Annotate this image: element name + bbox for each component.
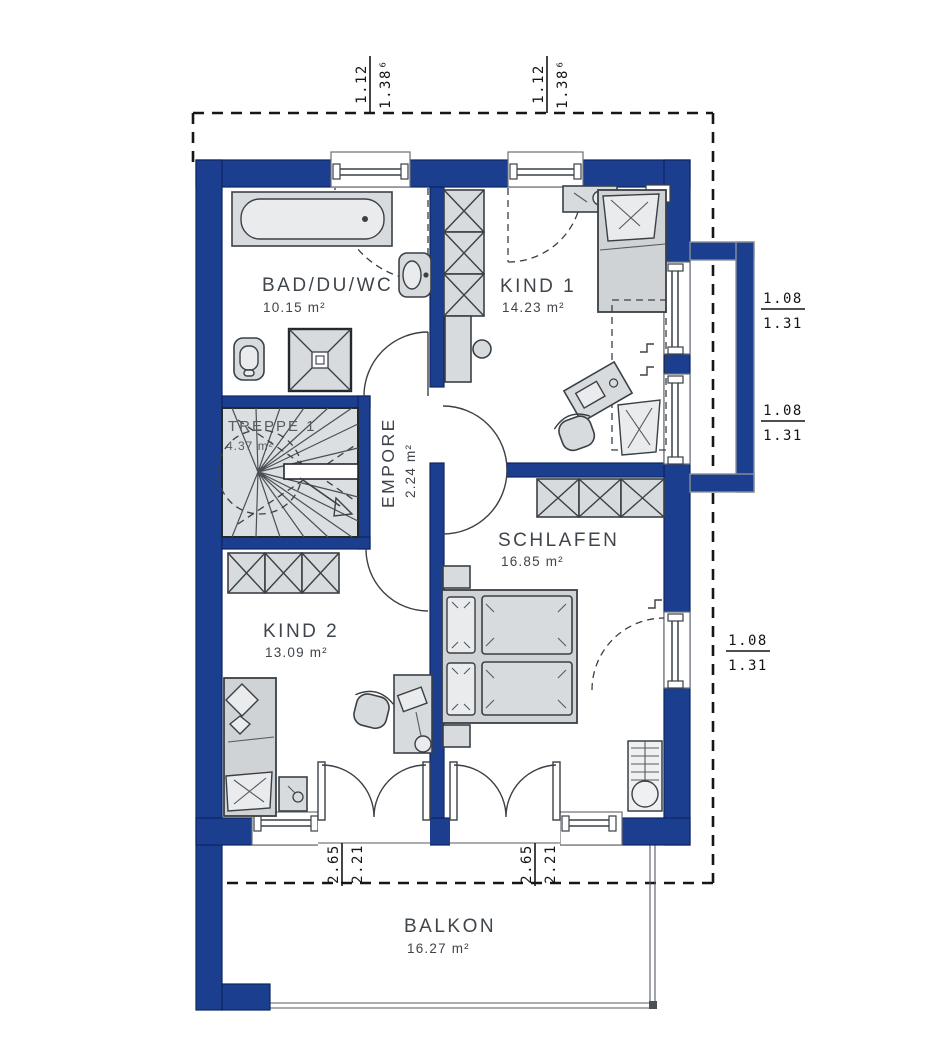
dimension-top-right: 1.12 1.38⁶ [531,56,571,113]
railing-post [649,1001,657,1009]
stair-wall-north [222,396,370,408]
stair-handrail [284,464,358,479]
wall-north [196,160,690,187]
nightstand-schlafen-top [443,566,470,588]
wardrobe-kind1 [444,190,484,316]
dim-value: 2.65 [519,844,535,884]
area-empore: 2.24 m² [403,444,418,498]
dim-value: 1.12 [531,64,547,104]
wardrobe-kind2 [228,553,339,593]
bed-kind1 [598,190,666,312]
label-schlafen: SCHLAFEN [498,530,619,551]
window-east-schlafen [592,612,690,690]
dimension-bottom-right: 2.65 2.21 [519,843,559,886]
dimension-top-left: 1.12 1.38⁶ [354,56,394,113]
knee-wall-marker-schlafen [648,600,662,608]
stair-wall-east [358,396,370,549]
label-balkon: BALKON [404,916,496,937]
dim-value: 1.12 [354,64,370,104]
dimension-right-lower: 1.08 1.31 [726,633,770,674]
wall-bad-kind1 [430,187,444,387]
double-bed-schlafen [442,590,577,723]
dim-value: 2.21 [350,844,366,884]
dim-value: 1.08 [728,633,768,649]
stair-wall-south [222,537,370,549]
dim-value: 1.38⁶ [555,59,571,109]
area-bad: 10.15 m² [263,300,326,315]
knee-wall-markers-kind1 [640,344,654,375]
door-swing-dashed [592,618,664,690]
balcony-wall-foot [222,984,270,1010]
nightstand-kind2 [279,777,307,811]
bed-kind2 [224,678,276,816]
radiator-schlafen [628,741,662,811]
toilet [234,338,264,380]
window-south-kind2 [252,812,320,845]
wardrobe-schlafen [537,479,664,517]
bay-window-lower [664,374,690,464]
balcony-door-kind2 [318,762,430,847]
door-leaf [423,762,430,820]
dim-value: 2.21 [543,844,559,884]
shower [289,329,351,391]
dim-value: 1.08 [763,403,803,419]
balcony-door-schlafen [450,762,560,847]
label-empore: EMPORE [378,417,398,508]
dim-value: 1.38⁶ [378,59,394,109]
area-treppe: 4.37 m² [226,439,274,453]
area-schlafen: 16.85 m² [501,554,564,569]
window-south-schlafen [560,812,622,845]
area-kind1: 14.23 m² [502,300,565,315]
door-leaf [553,762,560,820]
window-north-kind1 [508,152,583,187]
wall-kind1-schlafen [507,463,664,477]
dim-value: 1.31 [763,316,803,332]
floor-plan: BAD/DU/WC 10.15 m² KIND 1 14.23 m² TREPP… [0,0,933,1057]
nightstand-schlafen-bottom [443,725,470,747]
dim-value: 2.65 [326,844,342,884]
dim-value: 1.31 [728,658,768,674]
area-balkon: 16.27 m² [407,941,470,956]
dimension-bottom-left: 2.65 2.21 [326,843,366,886]
dimension-right-middle: 1.08 1.31 [761,403,805,444]
door-leaf [450,762,457,820]
bathtub [232,192,392,246]
desk-kind2 [394,675,432,753]
dimension-right-upper: 1.08 1.31 [761,291,805,332]
floor-plan-canvas: BAD/DU/WC 10.15 m² KIND 1 14.23 m² TREPP… [0,0,933,1057]
bay-window-walls [690,242,754,492]
label-bad: BAD/DU/WC [262,275,393,296]
door-leaf [318,762,325,820]
dresser-kind1 [445,316,491,382]
label-kind2: KIND 2 [263,621,339,642]
label-kind1: KIND 1 [500,276,576,297]
door-corridor-schlafen [443,406,507,534]
window-north-bad [331,152,410,187]
label-treppe: TREPPE 1 [228,418,317,435]
dim-value: 1.08 [763,291,803,307]
washbasin [399,253,431,297]
area-kind2: 13.09 m² [265,645,328,660]
desk-chair-kind2 [349,687,395,731]
dim-value: 1.31 [763,428,803,444]
bay-window-upper [664,262,690,354]
door-kind2 [366,549,428,611]
wall-west [196,160,222,1010]
